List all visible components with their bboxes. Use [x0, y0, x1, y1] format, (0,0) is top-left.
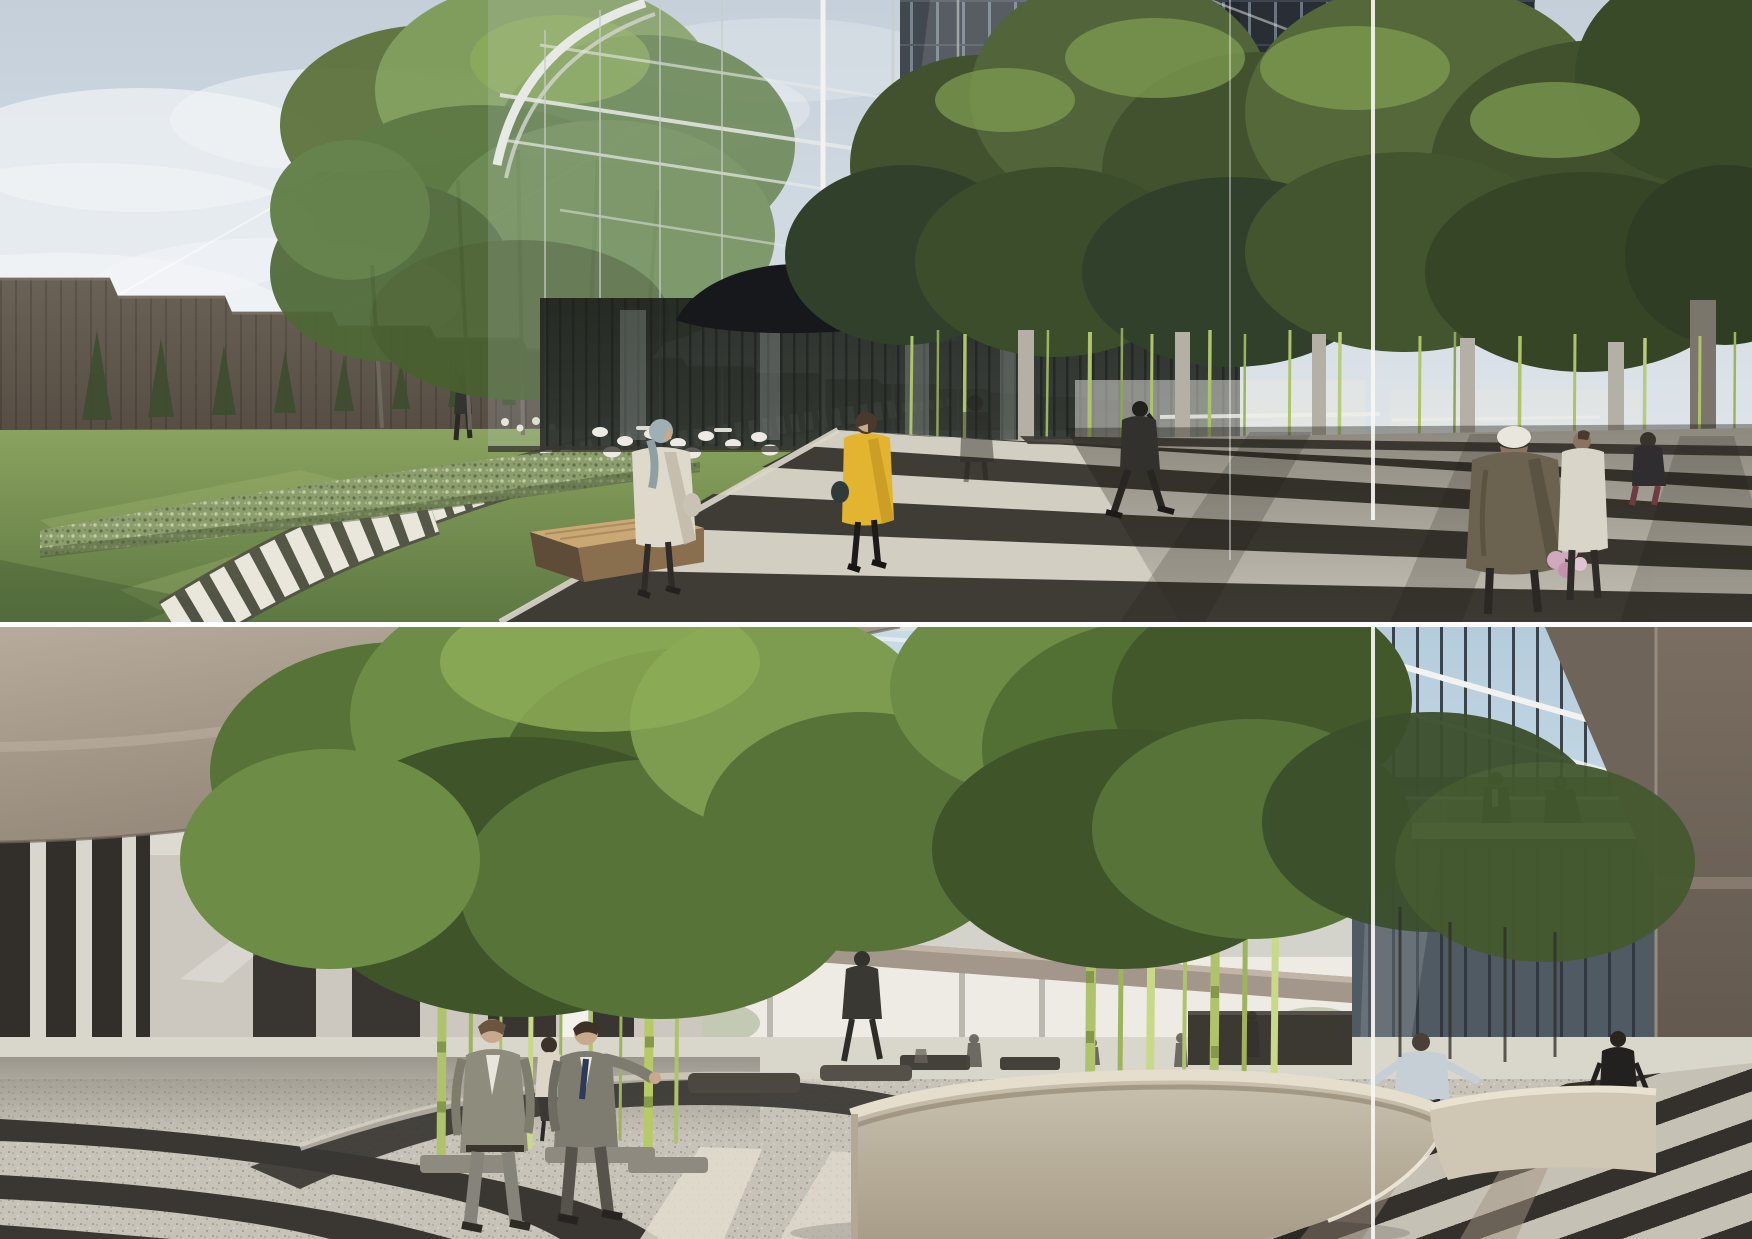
mullion-line-seam — [1229, 0, 1231, 560]
architectural-collage — [0, 0, 1752, 1239]
mullion-line-bright-bottom — [1371, 627, 1375, 1239]
mullion-line-bright — [1371, 0, 1375, 520]
reception-desk — [790, 1075, 1447, 1239]
panel-exterior — [0, 0, 1752, 622]
reception-desk-right — [1430, 1089, 1656, 1180]
panel-interior — [0, 627, 1752, 1239]
